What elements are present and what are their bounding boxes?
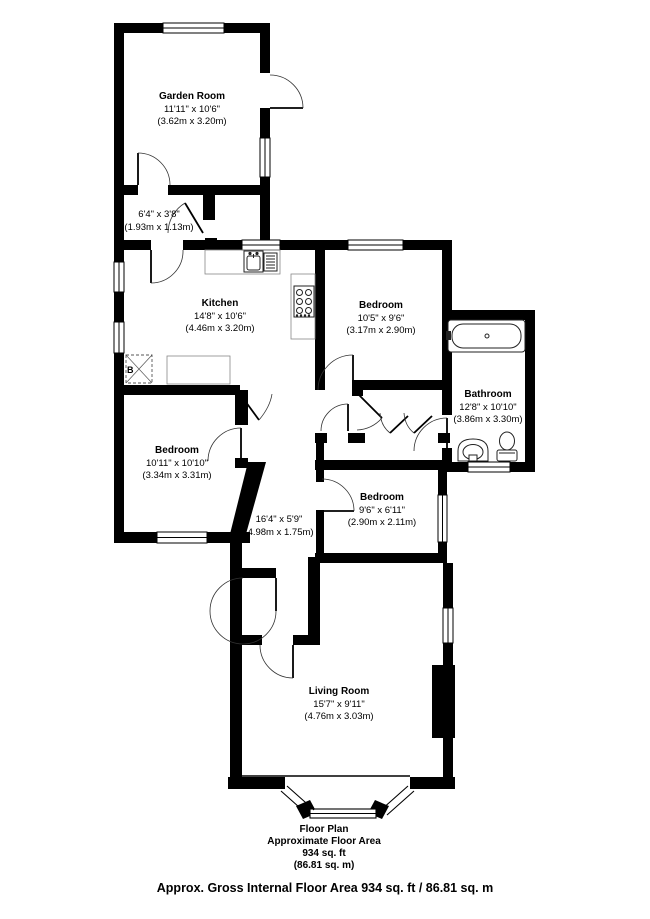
boiler-label: B	[127, 365, 134, 375]
door-swing-arcs	[138, 75, 447, 678]
plan-caption: Floor Plan Approximate Floor Area 934 sq…	[249, 824, 399, 872]
floor-plan-page: B Garden Room 11'	[0, 0, 650, 919]
kitchen-sink	[244, 251, 263, 272]
caption-area-m: (86.81 sq. m)	[249, 860, 399, 872]
chimney-breast	[432, 665, 455, 738]
hob	[294, 286, 314, 317]
doors	[138, 75, 447, 678]
gross-area-footer: Approx. Gross Internal Floor Area 934 sq…	[0, 881, 650, 895]
washbasin	[458, 439, 488, 461]
walls	[114, 23, 535, 819]
toilet	[497, 432, 517, 461]
bathtub	[446, 320, 525, 352]
caption-title: Floor Plan	[249, 824, 399, 836]
caption-subtitle: Approximate Floor Area	[249, 836, 399, 848]
fixtures: B	[126, 250, 525, 461]
boiler-box: B	[126, 355, 152, 383]
floor-plan-drawing: B	[0, 0, 650, 919]
drainer	[264, 253, 277, 271]
counters	[167, 250, 315, 384]
caption-area-ft: 934 sq. ft	[249, 848, 399, 860]
